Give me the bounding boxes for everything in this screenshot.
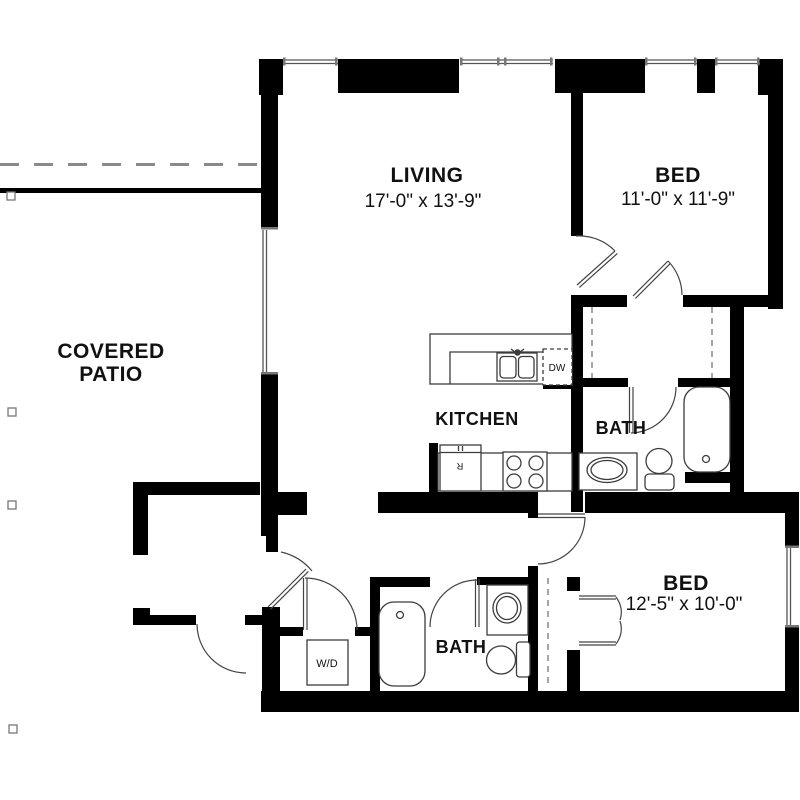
patio-label-line1: COVERED [57,340,164,363]
door-arc-bed1 [576,236,615,251]
wall-entry-stub [266,536,278,552]
room-label-kitchen: KITCHEN [435,409,519,429]
patio-edge-line [0,188,261,193]
wall-tub1-stub [685,472,730,483]
door-leaf-bed1 [577,251,615,285]
floor-plan: LIVING 17'-0" x 13'-9" BED 11'-0" x 11'-… [0,0,800,800]
refrigerator-label: R [456,461,463,471]
wall-main-left [261,492,307,515]
wall-patio-upper-h [133,482,260,495]
kitchen-sink-basin [519,357,535,379]
wall-living-bed-partition [571,59,583,236]
kitchen-faucet-icon [515,350,520,355]
wall-patio-lower-h [133,615,196,625]
wall-patio-upper-v [133,482,148,555]
bath1-toilet-bowl [646,449,672,474]
bath2-toilet-tank [517,642,531,677]
wall-kitchen-left [429,443,438,493]
floor-plan-drawing: LIVING 17'-0" x 13'-9" BED 11'-0" x 11'-… [0,0,800,800]
wall-bath2-top-right [477,577,530,585]
bath1-tub [684,387,730,472]
wall-bed2-right-lower [785,625,799,693]
dishwasher-label: DW [549,363,566,374]
door-arc-bed2-closet [616,621,621,644]
wall-bottom [261,691,799,712]
door-leaf-entry [270,571,308,609]
wall-bath1-right [730,307,744,512]
room-dims-bed1: 11'-0" x 11'-9" [621,189,735,210]
room-label-living: LIVING [390,164,463,187]
wall-closet-left [583,378,628,387]
door-arc-bed2-closet [616,597,621,620]
wall-left-upper [261,59,278,227]
door-arc-entry [281,552,312,571]
room-label-bath2: BATH [436,637,487,657]
bath2-toilet-bowl [487,646,516,674]
bath1-toilet-tank [645,474,674,490]
door-arc-hall [538,517,585,564]
room-label-bed2: BED [663,572,709,595]
wall-entry-hinge-block [265,607,280,625]
patio-column [9,725,17,733]
labels: LIVING 17'-0" x 13'-9" BED 11'-0" x 11'-… [57,164,742,670]
wall-right-upper [768,59,783,309]
room-label-bed1: BED [655,164,701,187]
wall-bed2-closet-stub-top [567,577,580,591]
door-arc-bed1-south [668,261,682,295]
patio-label-line2: PATIO [79,363,143,386]
wall-bed2-closet-stub-bottom [567,650,580,691]
door-arc-wd [305,578,357,630]
room-dims-living: 17'-0" x 13'-9" [365,191,482,212]
room-dims-bed2: 12'-5" x 10'-0" [626,594,743,615]
wall-tub2-top [370,577,430,587]
door-leaf-bed1 [579,253,617,287]
kitchen-sink-basin [500,357,516,379]
door-leaf-entry [268,569,306,607]
door-arc-patio [197,624,246,673]
door-leaf-bed1-south [635,263,670,298]
bath2-tub [379,602,425,686]
patio-column [8,501,16,509]
wall-top-segment [338,59,459,93]
wall-closet-right [678,378,730,387]
wall-main-center [378,492,538,513]
room-label-bath1: BATH [596,418,647,438]
wall-hall-door-stub [528,511,538,518]
patio-column [7,192,15,200]
wall-top-segment [555,59,645,93]
wall-wd-closet-left [280,627,303,636]
wall-bed1-bottom-right [683,295,783,307]
patio-column [8,408,16,416]
fixtures [7,192,730,733]
wall-main-right [585,492,799,513]
door-arc-bath2 [430,580,477,627]
door-leaf-bed1-south [633,261,668,296]
washer-dryer-label: W/D [316,658,337,670]
wall-bed2-right-upper [785,513,799,548]
wall-top-segment [697,59,715,93]
